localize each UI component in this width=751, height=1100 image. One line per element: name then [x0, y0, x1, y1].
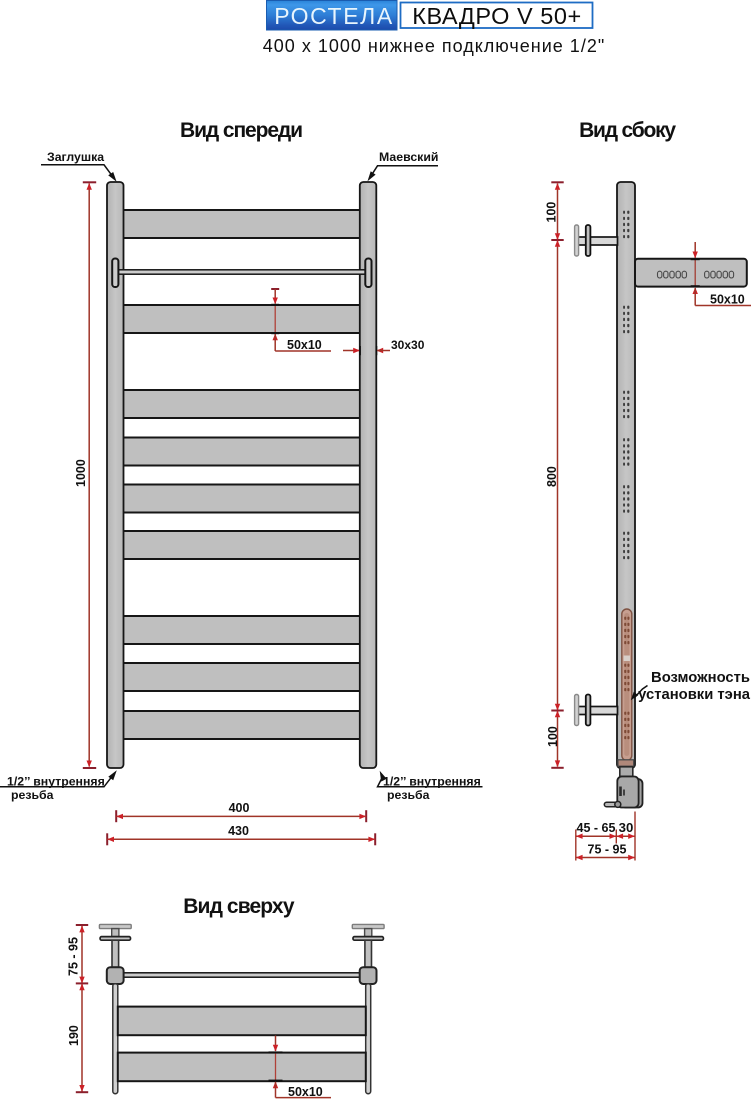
svg-text:400: 400 — [229, 801, 250, 815]
svg-text:Вид спереди: Вид спереди — [180, 119, 302, 142]
svg-text:КВАДРО V 50+: КВАДРО V 50+ — [412, 3, 582, 29]
svg-text:100: 100 — [546, 726, 560, 747]
svg-text:75 - 95: 75 - 95 — [588, 843, 627, 857]
svg-text:Заглушка: Заглушка — [47, 150, 104, 164]
svg-text:Вид сбоку: Вид сбоку — [579, 119, 676, 142]
svg-text:1000: 1000 — [74, 459, 88, 487]
svg-text:50x10: 50x10 — [288, 1085, 323, 1099]
svg-text:30: 30 — [619, 820, 634, 835]
svg-text:800: 800 — [545, 466, 559, 487]
svg-text:75 - 95: 75 - 95 — [67, 937, 81, 976]
svg-text:430: 430 — [228, 824, 249, 838]
svg-text:190: 190 — [67, 1025, 81, 1046]
svg-text:Вид сверху: Вид сверху — [183, 895, 295, 918]
svg-text:45 - 65: 45 - 65 — [577, 821, 616, 835]
svg-text:РОСТЕЛА: РОСТЕЛА — [274, 3, 394, 29]
svg-text:Возможность: Возможность — [651, 670, 750, 686]
svg-text:установки тэна: установки тэна — [638, 687, 751, 703]
svg-text:400 x 1000 нижнее подключение: 400 x 1000 нижнее подключение 1/2" — [263, 36, 605, 56]
svg-text:50x10: 50x10 — [710, 293, 745, 307]
svg-text:30x30: 30x30 — [391, 338, 425, 352]
svg-text:резьба: резьба — [11, 788, 54, 802]
svg-text:резьба: резьба — [387, 788, 430, 802]
svg-text:100: 100 — [545, 202, 559, 223]
svg-text:50x10: 50x10 — [287, 338, 322, 352]
svg-text:Маевский: Маевский — [379, 150, 438, 164]
